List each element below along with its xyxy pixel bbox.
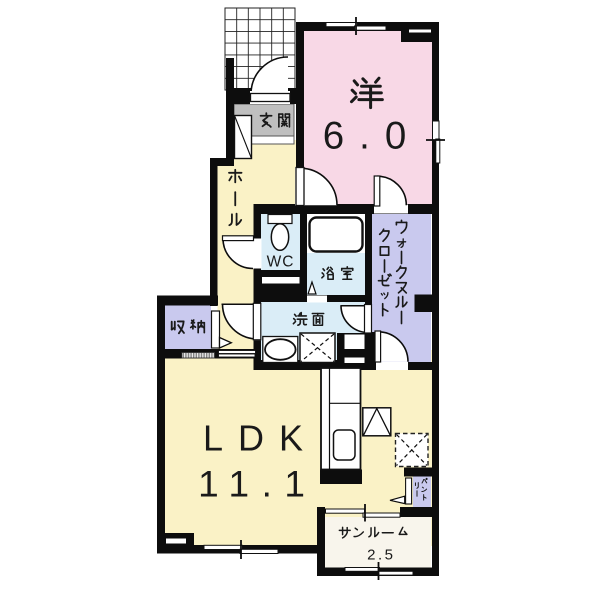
svg-text:2.5: 2.5 (367, 547, 395, 564)
svg-text:WC: WC (267, 254, 295, 271)
svg-text:LDK: LDK (203, 418, 318, 459)
svg-text:11.1: 11.1 (198, 464, 317, 505)
svg-text:6.0: 6.0 (323, 115, 422, 158)
